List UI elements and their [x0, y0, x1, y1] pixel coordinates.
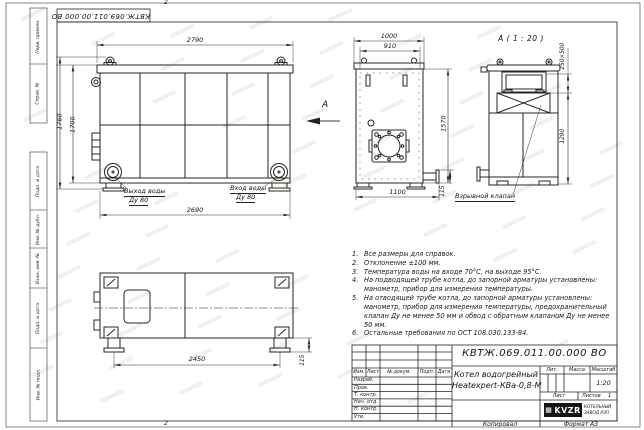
dim-side-height-inner: 1700 — [69, 110, 76, 140]
mass-label: Масса — [564, 368, 590, 374]
note-number: 3. — [352, 268, 364, 277]
doc-number-top-box: КВТЖ.069.011.00.000 ВО — [57, 9, 150, 22]
sheets-label: Листов — [582, 394, 601, 400]
margin-label-perv-primen: Перв. примен. — [30, 8, 47, 64]
rev-header-list: Лист — [366, 370, 380, 375]
logo-text: KVZR — [554, 406, 580, 415]
dim-plan-feet: 2450 — [114, 356, 280, 363]
note-text: Все размеры для справок. — [364, 250, 614, 259]
note-text: На отводящей трубе котла, до запорной ар… — [364, 294, 614, 329]
note-item: 5.На отводящей трубе котла, до запорной … — [352, 294, 614, 329]
note-number: 1. — [352, 250, 364, 259]
dim-side-top: 2790 — [97, 37, 293, 44]
drawing-sheet: КВТЖ.069.011.00.000 ВО 2 2 Перв. примен.… — [0, 0, 644, 430]
margin-label-podp-data-2: Подп. и дата — [30, 288, 47, 348]
margin-label-inv-podl: Инв. № подл. — [30, 348, 47, 421]
scale-value: 1:20 — [590, 380, 617, 387]
format-label: Формат А3 — [545, 422, 617, 429]
margin-label-inv-dubl: Инв. № дубл. — [30, 210, 47, 248]
note-number: 4. — [352, 276, 364, 294]
technical-notes: 1.Все размеры для справок. 2.Отклонение … — [352, 250, 614, 338]
dim-front-foot: 115 — [440, 181, 446, 201]
scale-label: Масштаб — [590, 368, 617, 374]
zone-mark-bottom: 2 — [164, 421, 168, 428]
dim-a-height: 1290 — [560, 121, 566, 151]
margin-label-text: Инв. № дубл. — [36, 213, 41, 244]
rev-header-podp: Подп. — [418, 370, 436, 375]
note-number: 5. — [352, 294, 364, 329]
rev-header-data: Дата — [436, 370, 452, 375]
margin-label-text: Справ. № — [36, 82, 41, 104]
title-block-doc-number: КВТЖ.069.011.00.000 ВО — [452, 348, 617, 359]
dim-front-width-outer: 1000 — [354, 33, 424, 40]
note-item: 1.Все размеры для справок. — [352, 250, 614, 259]
note-number: 6. — [352, 329, 364, 338]
product-name-line2: Heatexpert-КВа-0,8-М — [452, 382, 540, 391]
note-item: 3.Температура воды на входе 70°С, на вых… — [352, 268, 614, 277]
rev-header-dokum: № докум. — [380, 370, 418, 375]
note-text: Температура воды на входе 70°С, на выход… — [364, 268, 614, 277]
staff-row-utv: Утв. — [354, 415, 365, 421]
staff-row-razrab: Разраб. — [354, 378, 374, 384]
margin-label-vzam-inv: Взам. инв. № — [30, 248, 47, 288]
note-text: На подводящей трубе котла, до запорной а… — [364, 276, 614, 294]
note-item: 2.Отклонение ±100 мм. — [352, 259, 614, 268]
view-a-title: А ( 1 : 20 ) — [488, 35, 554, 43]
dim-a-opening: 250×500 — [560, 41, 566, 71]
dim-plan-foot: 115 — [300, 350, 306, 370]
margin-label-text: Подп. и дата — [36, 302, 41, 333]
staff-row-prov: Пров. — [354, 386, 369, 392]
margin-label-text: Подп. и дата — [36, 165, 41, 196]
view-direction-letter: А — [322, 101, 328, 111]
note-text: Остальные требования по ОСТ 108.030.133-… — [364, 329, 614, 338]
margin-label-text: Взам. инв. № — [36, 252, 41, 283]
lit-label: Лит. — [540, 368, 564, 374]
margin-label-sprav: Справ. № — [30, 64, 47, 123]
explosion-valve-label: Взрывной клапан — [455, 193, 515, 202]
dim-side-bottom: 2690 — [100, 207, 290, 214]
drawing-linework — [0, 0, 644, 430]
logo-grid-icon: ▦ — [545, 407, 552, 414]
product-name-line1: Котел водогрейный — [452, 371, 540, 380]
sheets-value: 1 — [608, 394, 611, 400]
note-item: 4.На подводящей трубе котла, до запорной… — [352, 276, 614, 294]
dim-side-height-outer: 1760 — [56, 107, 63, 137]
note-item: 6.Остальные требования по ОСТ 108.030.13… — [352, 329, 614, 338]
company-name-line1: КОТЕЛЬНЫЙ — [584, 405, 611, 410]
note-text: Отклонение ±100 мм. — [364, 259, 614, 268]
note-number: 2. — [352, 259, 364, 268]
staff-row-nkontr: Н. контр. — [354, 407, 378, 413]
company-name-line2: ЗАВОД РЭП — [584, 411, 609, 416]
staff-row-tkontr: Т. контр. — [354, 393, 377, 399]
dim-front-width-inner: 910 — [360, 43, 420, 50]
margin-label-text: Перв. примен. — [36, 19, 41, 54]
margin-label-text: Инв. № подл. — [36, 369, 41, 401]
company-logo: ▦ KVZR — [544, 403, 582, 417]
inlet-dn-label: Ду 80 — [236, 194, 255, 203]
zone-mark-top: 2 — [164, 0, 168, 7]
dim-front-height: 1570 — [440, 106, 447, 142]
rev-header-izm: Изм. — [352, 370, 366, 375]
sheet-label: Лист — [540, 394, 578, 400]
staff-row-nachotd: Нач. отд. — [354, 400, 378, 406]
dim-front-bottom: 1100 — [356, 189, 439, 196]
margin-label-podp-data-1: Подп. и дата — [30, 152, 47, 210]
outlet-dn-label: Ду 80 — [129, 197, 148, 206]
copied-label: Копировал — [460, 422, 540, 429]
